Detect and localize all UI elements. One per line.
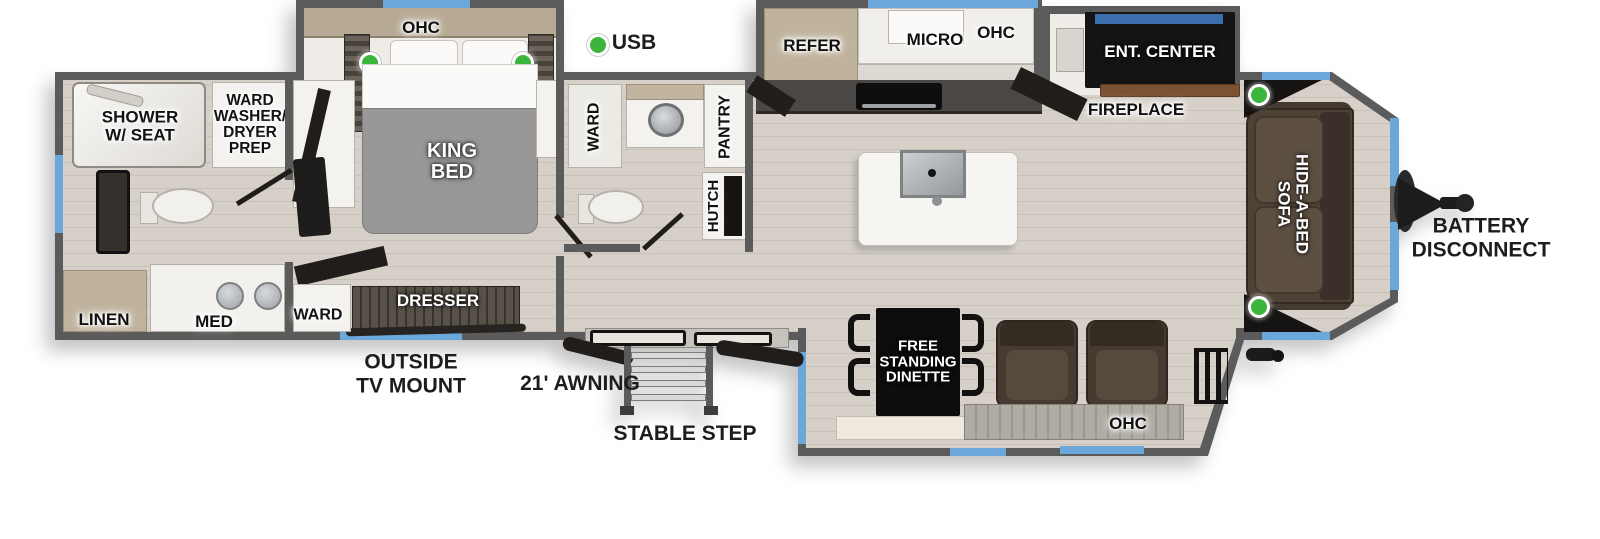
theater-seat-left-back <box>1000 322 1074 346</box>
top-wall-left-segment <box>55 72 305 80</box>
bottom-wall-left-segment <box>55 332 587 340</box>
ent-slide-step <box>1056 28 1084 72</box>
step-foot-left <box>620 406 634 415</box>
pantry-label: PANTRY <box>718 95 735 159</box>
hutch-black-shelf <box>724 176 742 236</box>
usb-dot-sofa-top <box>1248 84 1270 106</box>
ent-center-tv-glass <box>1095 14 1223 24</box>
ward-washer-dryer-prep-label: WARD WASHER/ DRYER PREP <box>214 93 286 157</box>
midbath-counter <box>626 84 704 100</box>
theater-seat-right-cushion <box>1096 350 1158 400</box>
bedroom-midbath-wall-upper <box>556 80 564 218</box>
step-rung-3 <box>631 380 706 387</box>
sofa-backrest <box>1320 112 1350 300</box>
bedroom-tv <box>293 157 332 237</box>
refer-label: REFER <box>783 37 841 55</box>
hutch-label: HUTCH <box>706 180 722 233</box>
hitch-coupler-knob <box>1456 194 1474 212</box>
cap-top-window <box>1262 72 1330 80</box>
toilet-mid-bowl <box>588 190 644 224</box>
step-rail-right <box>706 346 713 410</box>
cap-bottom-window <box>1262 332 1330 340</box>
rear-wall-window <box>55 155 63 233</box>
bathroom-tv <box>96 170 130 254</box>
linen-label: LINEN <box>79 311 130 329</box>
bedroom-slide-window <box>383 0 470 8</box>
bath-bedroom-wall-upper <box>285 80 293 180</box>
dinette-chair-top-right <box>962 314 984 352</box>
bottom-slide-window-1 <box>950 448 1006 456</box>
step-rung-4 <box>631 394 706 401</box>
kitchen-ohc-label: OHC <box>977 24 1015 42</box>
king-bed-label: KING BED <box>427 141 477 183</box>
usb-legend-dot <box>587 34 609 56</box>
dinette-chair-top-left <box>848 314 870 352</box>
top-wall-mid-segment <box>556 72 764 80</box>
midbath-bottom-wall <box>564 244 640 252</box>
trailer-body: OHC KING BED REFER MICRO OHC ENT. CENTER… <box>0 0 1600 539</box>
bedroom-midbath-wall-lower <box>556 256 564 340</box>
toilet-rear-bowl <box>152 188 214 224</box>
midbath-sink <box>648 103 684 137</box>
theater-seat-left-cushion <box>1006 350 1068 400</box>
battery-disconnect-label: BATTERY DISCONNECT <box>1412 214 1551 261</box>
usb-dot-sofa-bottom <box>1248 296 1270 318</box>
bedroom-ohc-label: OHC <box>402 19 440 37</box>
living-ohc-shelf <box>964 404 1184 440</box>
living-ohc-label: OHC <box>1109 415 1147 433</box>
step-rung-2 <box>631 366 706 373</box>
island-sink-drain <box>928 169 936 177</box>
awning-label: 21' AWNING <box>520 372 640 396</box>
bath-bedroom-wall-lower <box>285 262 293 340</box>
outside-tv-mount-label: OUTSIDE TV MOUNT <box>356 350 466 397</box>
entry-door-panel-left <box>590 330 686 346</box>
usb-legend-label: USB <box>612 31 656 55</box>
king-bed-sheet <box>362 64 538 110</box>
bottom-slide-window-2 <box>1060 446 1144 454</box>
step-rung-1 <box>631 352 706 359</box>
stable-step-label: STABLE STEP <box>613 422 756 446</box>
shower-label: SHOWER W/ SEAT <box>102 108 179 143</box>
med-sink-right <box>254 282 282 310</box>
dinette-chair-bottom-right <box>962 358 984 396</box>
midbath-ward-label: WARD <box>587 103 604 152</box>
fireplace-label: FIREPLACE <box>1088 101 1184 119</box>
micro-label: MICRO <box>907 31 964 49</box>
ent-center-label: ENT. CENTER <box>1104 43 1215 61</box>
cooktop-trim <box>862 104 936 108</box>
step-foot-right <box>704 406 718 415</box>
midbath-right-wall <box>745 80 753 252</box>
med-label: MED <box>195 313 233 331</box>
kitchen-slide-window <box>868 0 1038 8</box>
med-sink-left <box>216 282 244 310</box>
ladder-rack <box>1194 348 1228 404</box>
dinette-label: FREE STANDING DINETTE <box>879 339 956 386</box>
exterior-bracket-knob <box>1272 350 1284 362</box>
front-wall-window-lower <box>1390 222 1399 290</box>
theater-seat-right-back <box>1090 322 1164 346</box>
dinette-chair-bottom-left <box>848 358 870 396</box>
rv-floorplan: OHC KING BED REFER MICRO OHC ENT. CENTER… <box>0 0 1600 539</box>
dresser-label: DRESSER <box>397 292 479 310</box>
sofa-label: HIDE-A-BED SOFA <box>1275 154 1310 254</box>
fireplace <box>1100 84 1240 97</box>
island-faucet <box>932 196 942 206</box>
bedroom-ward-label: WARD <box>294 308 343 325</box>
